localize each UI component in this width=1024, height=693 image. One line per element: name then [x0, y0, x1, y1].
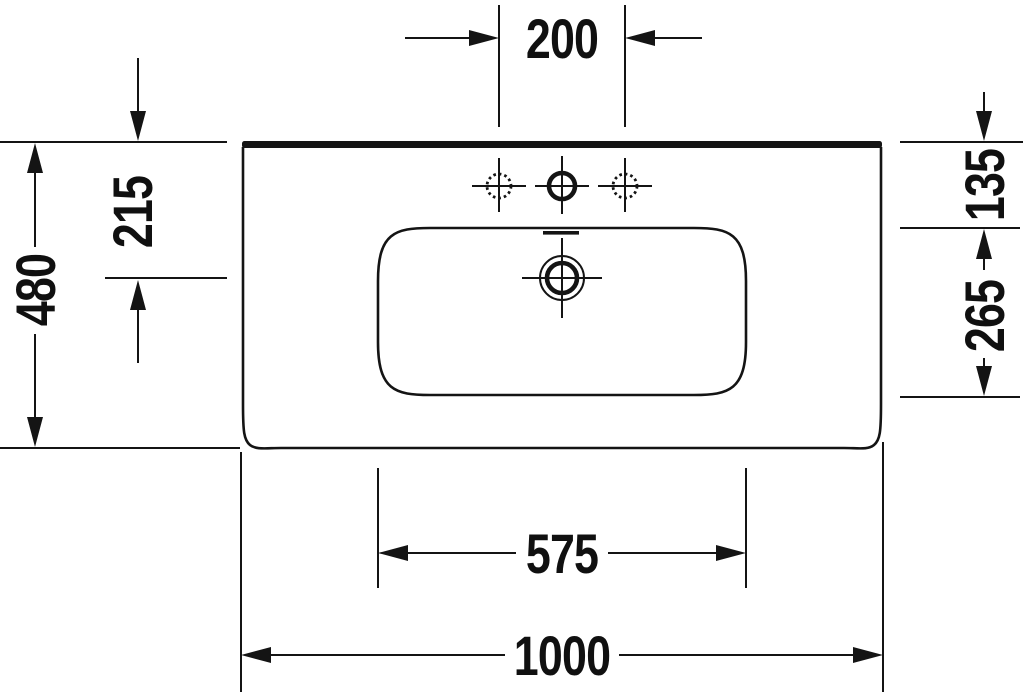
arrowhead-right [853, 647, 883, 663]
arrowhead-left [625, 30, 655, 46]
overflow-mark [543, 231, 579, 235]
dim-overall-width-label: 1000 [514, 624, 610, 687]
arrowhead-left [241, 647, 271, 663]
arrowhead-down [27, 417, 43, 447]
dim-bowl-width-label: 575 [526, 522, 598, 585]
arrowhead-up [130, 280, 146, 310]
washbasin-technical-drawing: 200 480 215 135 265 [0, 0, 1024, 693]
faucet-hole-center-icon [535, 156, 589, 214]
dim-back-to-drain-label: 215 [101, 176, 164, 248]
arrowhead-down [976, 111, 992, 141]
faucet-holes-group [472, 156, 652, 214]
arrowhead-up [27, 143, 43, 173]
dim-overall-depth-label: 480 [4, 254, 67, 326]
dim-faucet-spacing-label: 200 [526, 7, 598, 70]
drawing-canvas: 200 480 215 135 265 [0, 0, 1024, 693]
arrowhead-down [976, 366, 992, 396]
dim-bowl-width: 575 [378, 468, 746, 588]
dim-faucet-spacing: 200 [405, 5, 702, 127]
arrowhead-up [976, 229, 992, 259]
drain-icon [522, 238, 602, 318]
dim-back-to-bowl: 135 [900, 92, 1023, 221]
arrowhead-right [469, 30, 499, 46]
dim-bowl-depth: 265 [900, 228, 1020, 397]
basin-back-rim [242, 141, 882, 148]
dim-back-to-bowl-label: 135 [953, 149, 1016, 221]
faucet-hole-left-icon [472, 158, 526, 212]
dim-bowl-depth-label: 265 [953, 280, 1016, 352]
arrowhead-right [716, 545, 746, 561]
arrowhead-left [378, 545, 408, 561]
arrowhead-down [130, 111, 146, 141]
dim-back-to-drain: 215 [101, 58, 227, 363]
faucet-hole-right-icon [598, 158, 652, 212]
